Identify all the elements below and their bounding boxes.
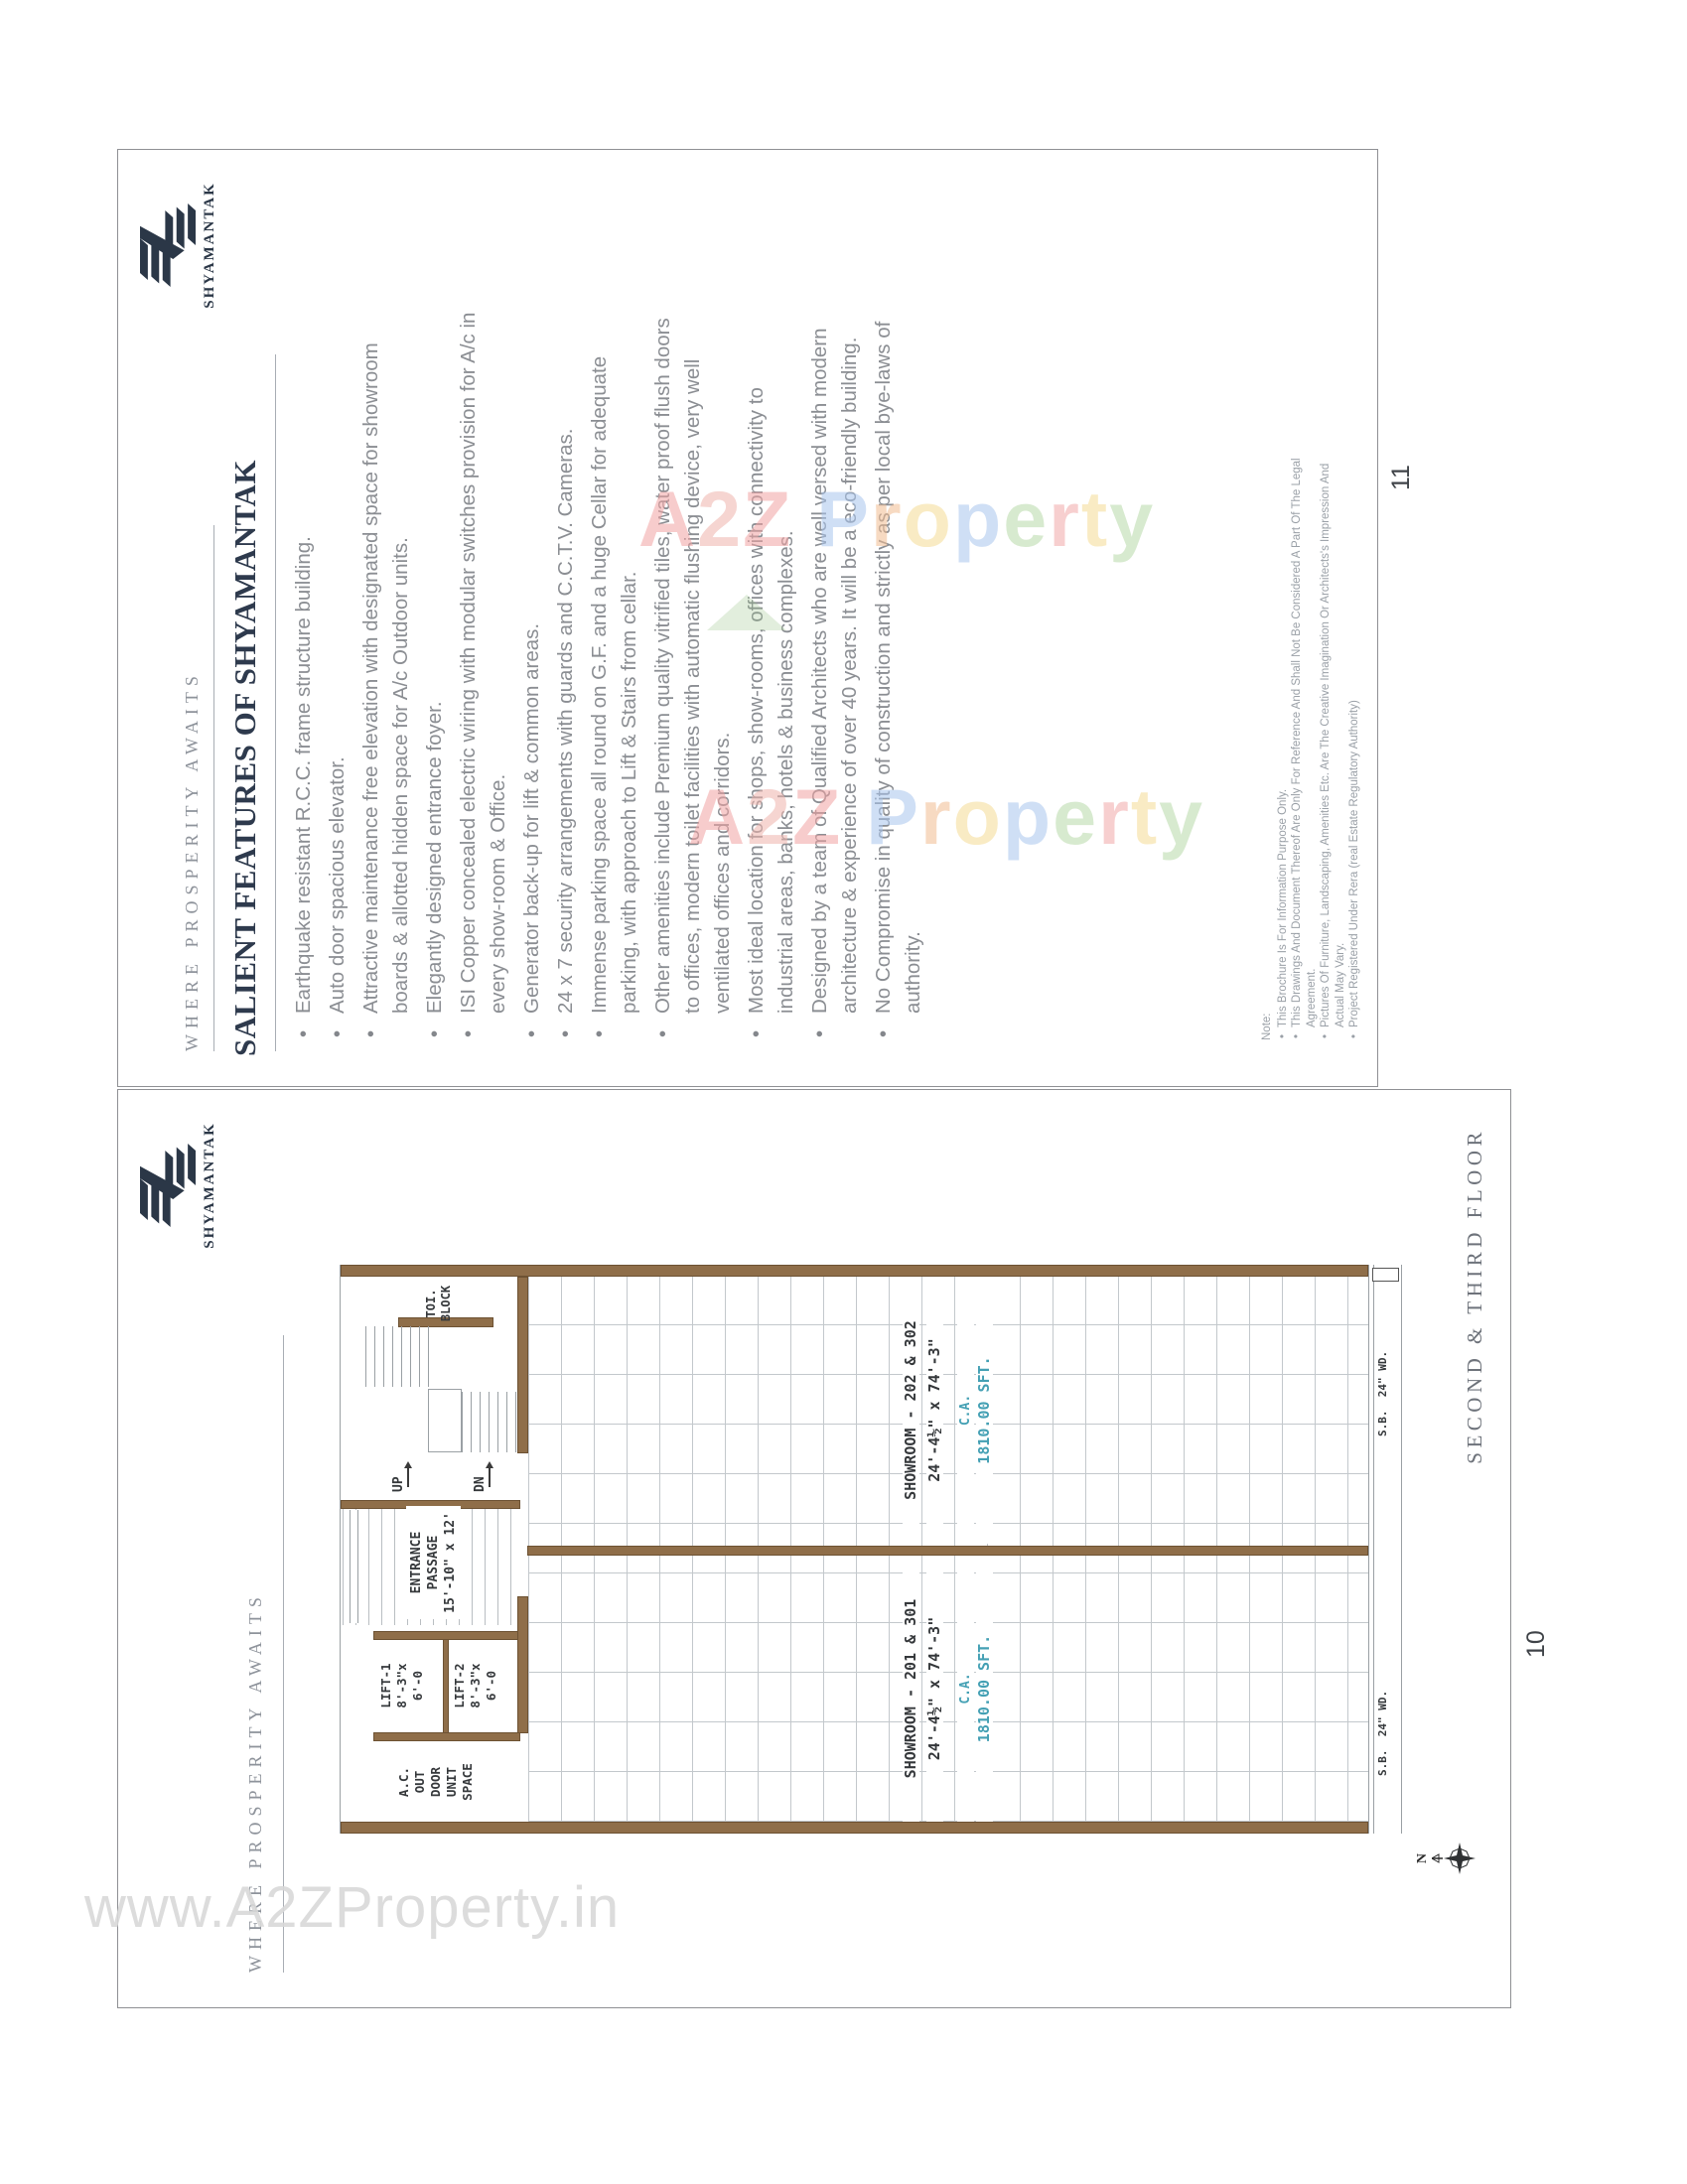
brand-name: SHYAMANTAK [202, 1116, 218, 1255]
shyamantak-logo-icon [140, 1116, 196, 1255]
down-arrow-icon [489, 1463, 491, 1487]
side-band-label: S.B. 24" WD. [1376, 1351, 1389, 1436]
note-label: Note: [1260, 445, 1275, 1040]
showroom-202-302-label: SHOWROOM - 202 & 302 24'-4½" x 74'-3" C.… [903, 1277, 993, 1544]
feature-item: Most ideal location for shops, show-room… [742, 306, 801, 1040]
feature-item: Immense parking space all round on G.F. … [585, 306, 644, 1040]
toilet-block-label: TOI. BLOCK [424, 1273, 454, 1334]
page-title: SALIENT FEATURES OF SHYAMANTAK [227, 460, 263, 1056]
wall-left [341, 1822, 1368, 1834]
wall-core-bottom-a [517, 1596, 528, 1733]
shyamantak-logo-icon [140, 176, 196, 315]
north-compass-icon: N [1415, 1829, 1484, 1888]
note-item: This Drawings And Document Thereof Are O… [1290, 445, 1319, 1040]
ac-outdoor-unit-label: A.C. OUT DOOR UNIT SPACE [396, 1742, 476, 1822]
stair-flight-up [365, 1326, 429, 1387]
feature-item: Other amenities include Premium quality … [648, 306, 738, 1040]
wall-lift-right [373, 1631, 520, 1640]
feature-item: 24 x 7 security arrangements with guards… [551, 306, 581, 1040]
feature-item: ISI Copper concealed electric wiring wit… [454, 306, 513, 1040]
corner-column [1372, 1268, 1399, 1282]
page-number-10: 10 [1522, 1630, 1551, 1658]
disclaimer-note: Note: This Brochure Is For Information P… [1260, 445, 1362, 1040]
side-band-label: S.B. 24" WD. [1376, 1691, 1389, 1776]
side-band-line [1368, 1265, 1369, 1834]
lift-1-label: LIFT-1 8'-3"x 6'-0 [378, 1640, 426, 1731]
stair-flight-down [462, 1392, 519, 1452]
lift-2-label: LIFT-2 8'-3"x 6'-0 [452, 1640, 499, 1731]
north-label: N [1415, 1829, 1431, 1888]
brand-tagline: WHERE PROSPERITY AWAITS [182, 670, 203, 1051]
feature-item: Earthquake resistant R.C.C. frame struct… [289, 306, 319, 1040]
shyamantak-logo: SHYAMANTAK [140, 176, 218, 315]
feature-item: Designed by a team of Qualified Architec… [805, 306, 865, 1040]
note-item: Pictures Of Furniture, Landscaping, Amen… [1319, 445, 1347, 1040]
wall-lift-divider [443, 1639, 449, 1733]
feature-item: No Compromise in quality of construction… [869, 306, 928, 1040]
side-band-line [1373, 1265, 1374, 1834]
brand-tagline: WHERE PROSPERITY AWAITS [245, 1591, 266, 1973]
entrance-passage-label: ENTRANCE PASSAGE 15'-10" x 12' [406, 1506, 461, 1619]
showroom-201-301-label: SHOWROOM - 201 & 301 24'-4½" x 74'-3" C.… [903, 1556, 993, 1822]
page-11-salient-features: WHERE PROSPERITY AWAITS SHYAMANTAK [117, 149, 1378, 1087]
wall-ac-lift-divider [373, 1732, 520, 1741]
entrance-threshold [350, 1510, 358, 1623]
title-rule [275, 354, 276, 1051]
stair-up-label: UP [390, 1403, 409, 1492]
wall-right [341, 1265, 1368, 1277]
feature-item: Elegantly designed entrance foyer. [420, 306, 450, 1040]
stair-landing [428, 1389, 462, 1452]
note-item: Project Registered Under Rera (real Esta… [1347, 445, 1362, 1040]
note-item: This Brochure Is For Information Purpose… [1276, 445, 1291, 1040]
floor-plan-drawing: TOI. BLOCK UP DN ENTRANCE PASSAGE 15'-10… [340, 1265, 1402, 1834]
brand-name: SHYAMANTAK [202, 176, 218, 315]
scanned-brochure-canvas: WHERE PROSPERITY AWAITS SHYAMANTAK [0, 0, 1687, 2184]
floor-caption: SECOND & THIRD FLOOR [1463, 1128, 1487, 1464]
stair-down-label: DN [472, 1403, 491, 1492]
header-rule [213, 525, 214, 1051]
shyamantak-logo: SHYAMANTAK [140, 1116, 218, 1255]
page-number-11: 11 [1387, 465, 1416, 490]
page-10-floor-plan: WHERE PROSPERITY AWAITS SHYAMANTAK [117, 1089, 1511, 2008]
feature-list: Earthquake resistant R.C.C. frame struct… [289, 306, 932, 1040]
wall-showroom-divider [527, 1546, 1368, 1556]
feature-item: Attractive maintenance free elevation wi… [356, 306, 416, 1040]
up-arrow-icon [407, 1463, 409, 1487]
feature-item: Generator back-up for lift & common area… [517, 306, 547, 1040]
header-rule [283, 1335, 284, 1973]
side-band-line [1401, 1265, 1402, 1834]
feature-item: Auto door spacious elevator. [323, 306, 352, 1040]
